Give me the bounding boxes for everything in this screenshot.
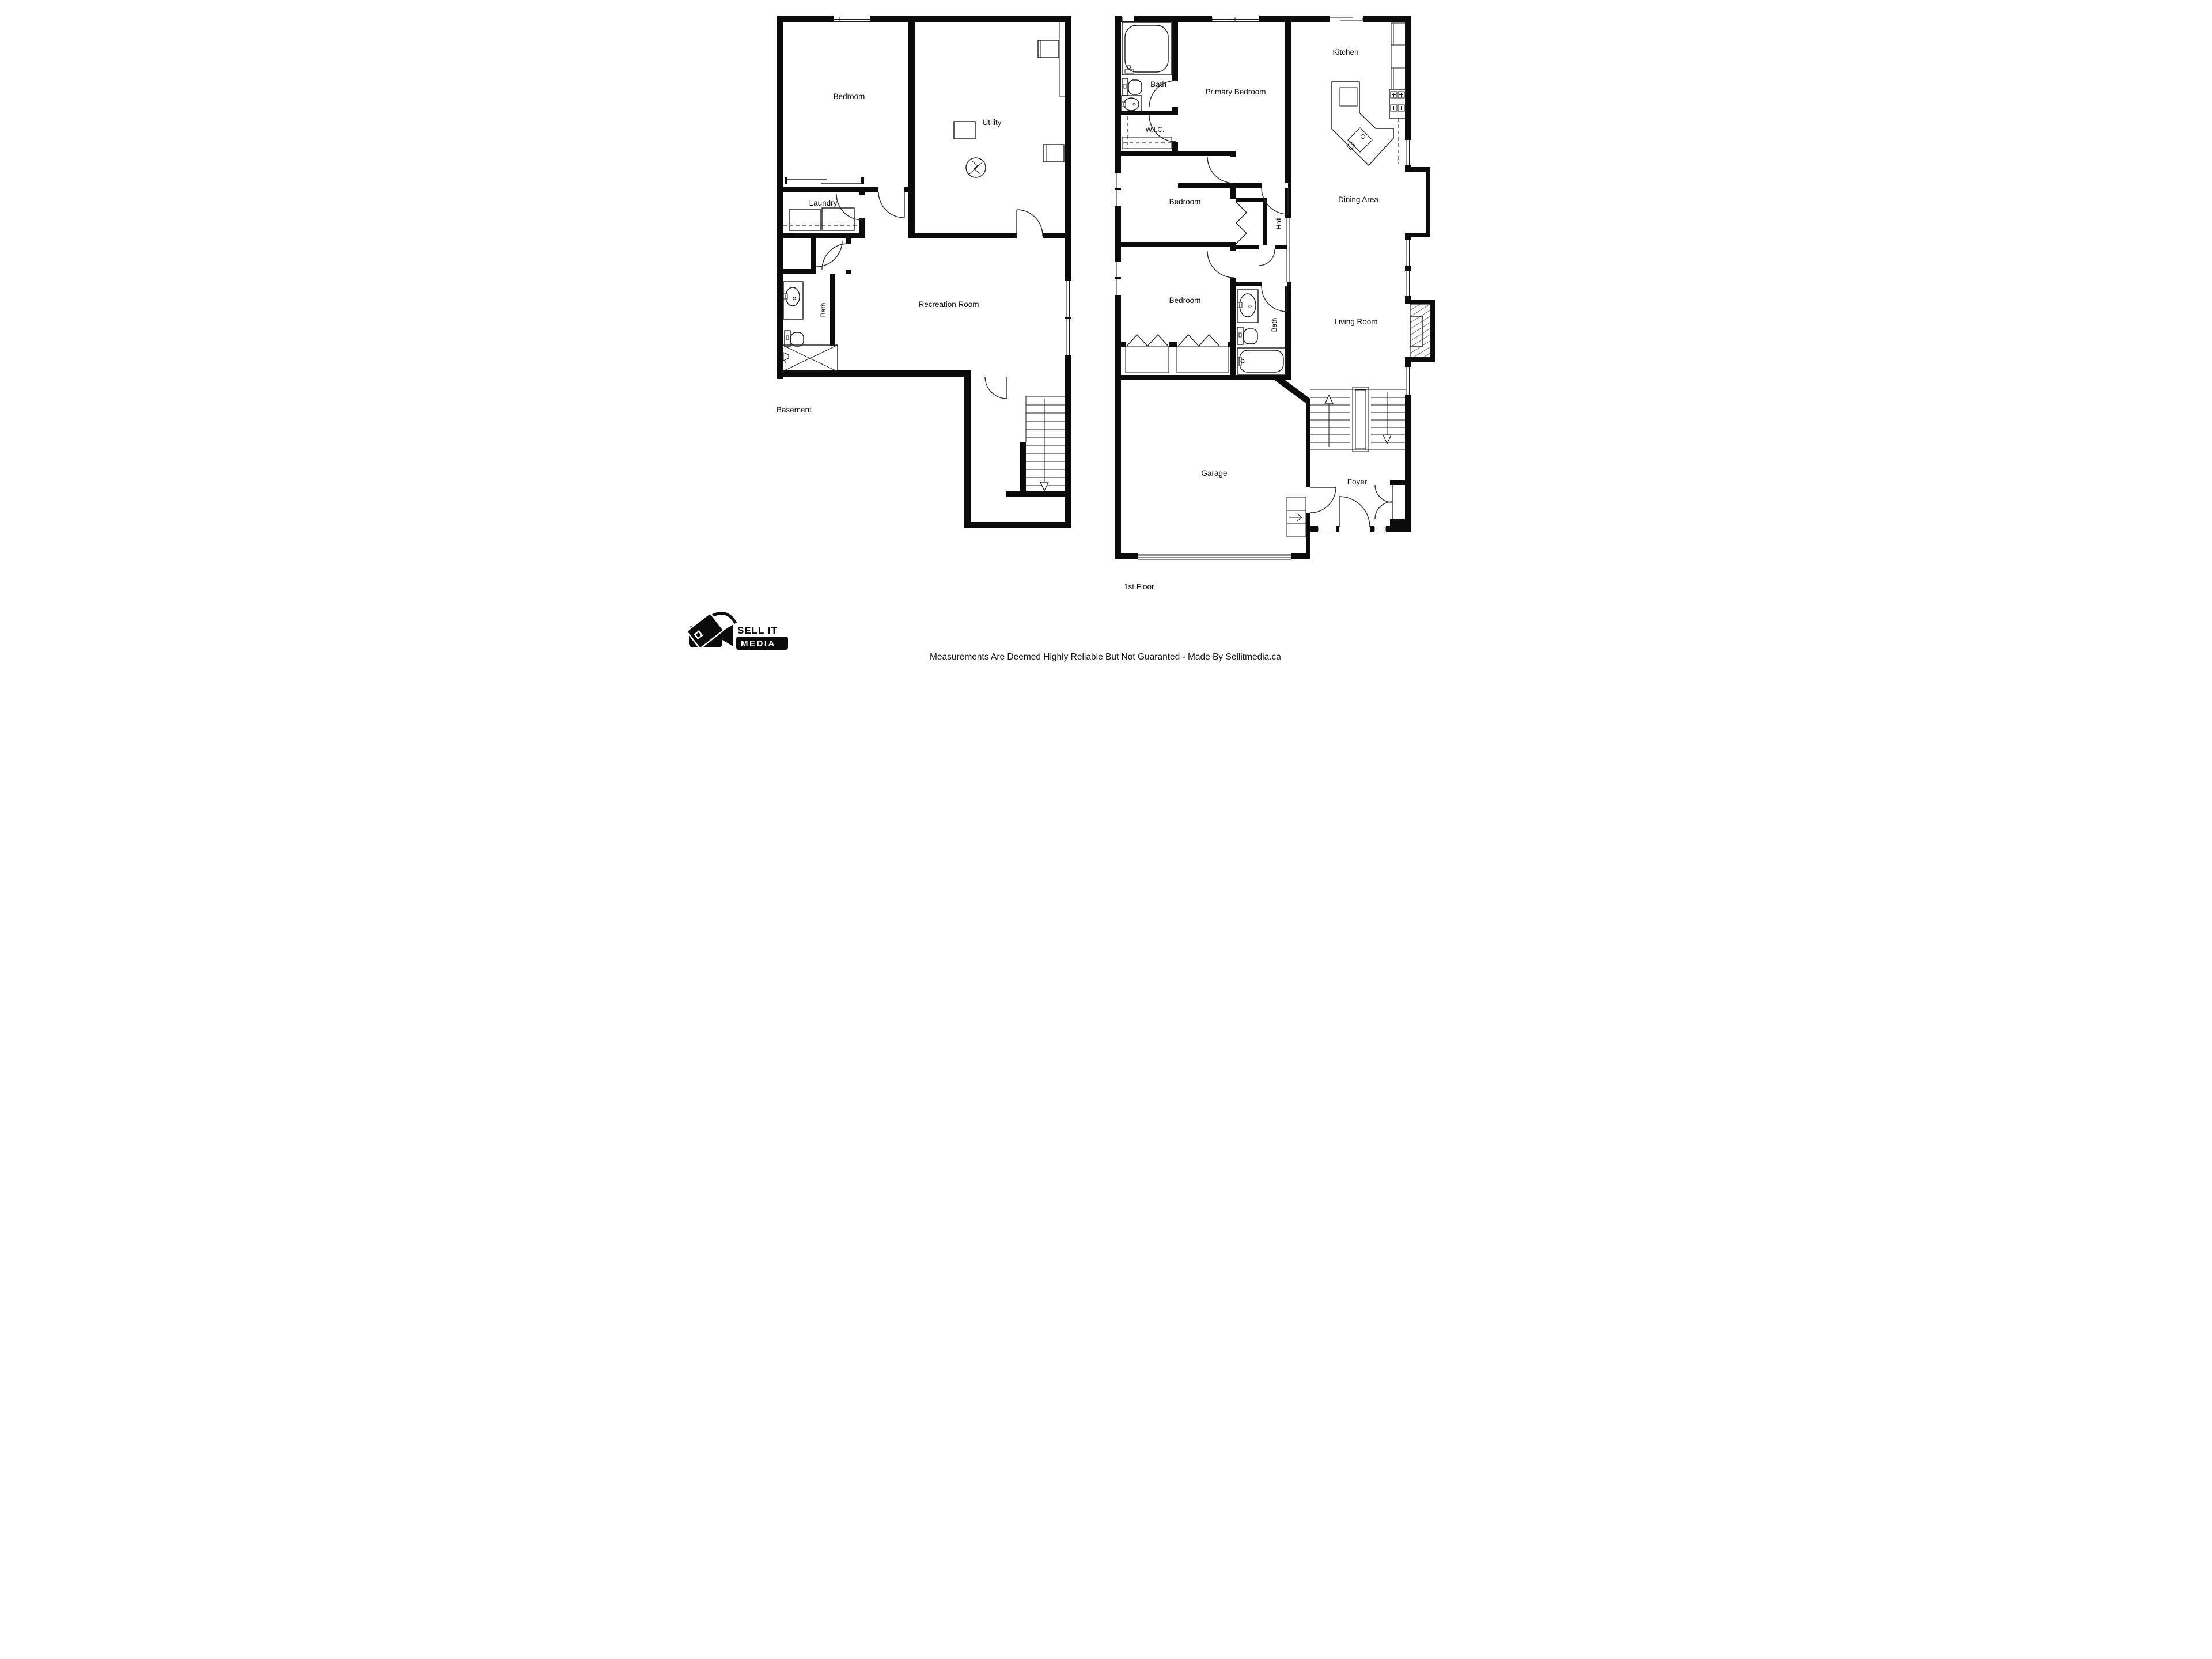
bedroom-mid-label: Bedroom [1169,198,1201,206]
basement-stairs [1026,396,1065,491]
bathtub-icon [1122,22,1171,75]
sink-lower-icon [1237,290,1258,323]
basement-laundry-door [836,194,865,220]
bedroom-mid-door [1207,157,1236,183]
toilet-upper-icon [1122,78,1142,96]
bathtub-lower-icon [1237,348,1286,374]
garage-door-icon [1138,554,1291,559]
living-label: Living Room [1334,317,1377,326]
living-window [1405,367,1411,395]
basement-utility-window-line [1060,22,1065,97]
stairs-up-arrow-icon [1325,395,1333,447]
first-floor-plan-title: 1st Floor [1124,582,1154,591]
water-heater-icon [1038,40,1059,58]
footer-disclaimer: Measurements Are Deemed Highly Reliable … [930,652,1281,662]
basement-walls [777,16,1071,528]
basement-plan-title: Basement [777,406,812,414]
basement-sink-icon [783,282,803,319]
dining-window-mid [1405,240,1411,266]
basement-bedroom-closet-icon [785,177,864,184]
garage-foyer-door [1306,487,1336,513]
fireplace-icon [1410,304,1430,357]
basement-bedroom-window [834,16,870,22]
basement-recreation-label: Recreation Room [918,300,979,309]
stove-icon [1389,89,1406,118]
dining-window-lower [1405,271,1411,296]
bedroom-closets-bifold-icon [1126,335,1228,373]
garage-steps [1287,497,1306,537]
first-floor-walls [1115,16,1435,559]
bedroom-lower-door [1207,251,1236,278]
basement-utility-label: Utility [983,118,1002,127]
primary-bedroom-label: Primary Bedroom [1205,88,1266,96]
first-floor-plan: Bath Primary Bedroom W.I.C. Kitchen Bedr… [1115,16,1435,591]
linen-closet-door [1259,245,1275,266]
floorplan-page: Bedroom Utility Laundry Bath Recreation … [654,0,1558,677]
hall-closet-bifold-icon [1236,202,1247,244]
sink-upper-icon [1122,96,1142,113]
floorplan-canvas: Bedroom Utility Laundry Bath Recreation … [654,0,1558,677]
garage-label: Garage [1201,469,1227,478]
utility-equipment-icon [1043,145,1064,162]
first-floor-stairs [1310,387,1406,452]
basement-utility-door [1017,210,1043,238]
wic-label: W.I.C. [1146,126,1165,134]
basement-bedroom-label: Bedroom [834,92,865,101]
video-camera-tag-icon [687,613,736,649]
dining-window-upper [1405,140,1411,165]
basement-plan: Bedroom Utility Laundry Bath Recreation … [777,16,1071,528]
basement-bath-label: Bath [819,303,827,317]
basement-toilet-icon [785,331,804,347]
logo-line2: MEDIA [741,639,776,649]
kitchen-label: Kitchen [1332,48,1358,56]
bedroom-mid-window [1115,173,1121,206]
basement-bedroom-door [878,187,904,218]
shower-icon [782,345,838,372]
basement-laundry-label: Laundry [809,199,838,207]
sump-pump-icon [966,158,986,177]
foyer-closet-doors [1375,485,1392,519]
primary-bedroom-window [1212,16,1259,22]
dining-label: Dining Area [1338,195,1378,204]
toilet-lower-icon [1237,327,1257,344]
front-door [1339,497,1370,532]
sellit-media-logo: SELL IT MEDIA [687,613,788,650]
bedroom-lower-label: Bedroom [1169,296,1201,305]
bath-lower-label: Bath [1270,318,1278,332]
steps-arrow-icon [1289,514,1302,521]
bath-window [1122,16,1134,22]
foyer-window-right [1374,526,1386,532]
bath-upper-label: Bath [1150,80,1166,89]
kitchen-island-sink-icon [1332,82,1393,165]
logo-line1: SELL IT [737,625,778,636]
stairs-down-arrow-icon [1040,399,1048,491]
washer-dryer-icon [783,208,858,230]
basement-rec-window [1065,281,1071,355]
foyer-window-left [1318,526,1336,532]
stairs-down-arrow-2-icon [1383,392,1391,444]
basement-vestibule-doors [816,241,848,270]
bedroom-lower-window [1115,262,1121,295]
furnace-icon [954,122,975,139]
kitchen-window [1330,16,1363,22]
basement-rec-door [985,370,1007,399]
foyer-label: Foyer [1347,478,1368,486]
hall-label: Hall [1275,218,1283,230]
bath-lower-door [1262,282,1287,312]
